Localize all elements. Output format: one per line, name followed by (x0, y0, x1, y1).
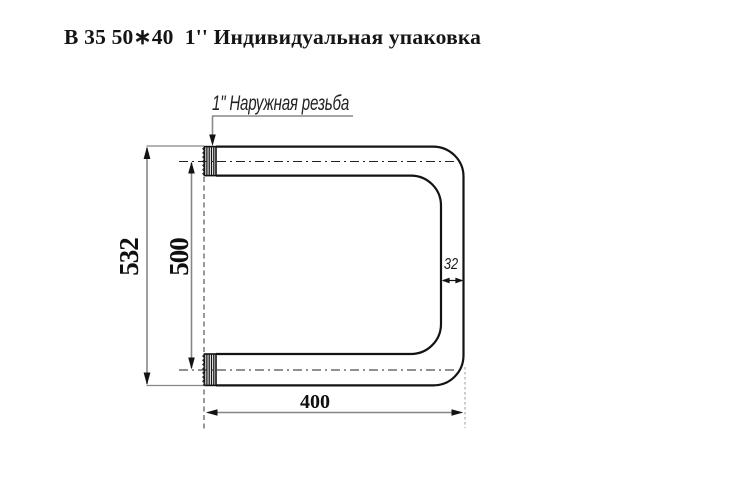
arrow-down-icon (144, 373, 151, 386)
arrow-up-icon (188, 162, 195, 174)
arrow-down-icon (188, 358, 195, 370)
towel-rail-outline (216, 147, 464, 386)
technical-drawing: 1" Наружная резьба 532 500 400 32 (0, 0, 750, 500)
arrow-left-icon (206, 409, 218, 416)
drawing-linework (0, 0, 750, 500)
arrow-up-icon (144, 147, 151, 160)
arrow-left-icon (442, 278, 450, 284)
dim-400-label: 400 (275, 391, 355, 414)
thread-leader (209, 116, 353, 146)
arrow-right-icon (452, 409, 464, 416)
arrow-right-icon (455, 278, 463, 284)
centerlines (179, 162, 457, 371)
dim-32-label: 32 (437, 256, 466, 274)
arrow-down-icon (209, 135, 216, 147)
drawing-page: В 35 50∗40 1'' Индивидуальная упаковка (0, 0, 750, 500)
thread-callout-label: 1" Наружная резьба (212, 92, 349, 116)
pipe-inner-edge (216, 176, 441, 354)
extension-lines (147, 146, 466, 431)
dim-500-label: 500 (164, 217, 192, 297)
dim-32 (442, 278, 464, 284)
dim-532-label: 532 (114, 217, 142, 297)
dim-532 (144, 147, 151, 386)
